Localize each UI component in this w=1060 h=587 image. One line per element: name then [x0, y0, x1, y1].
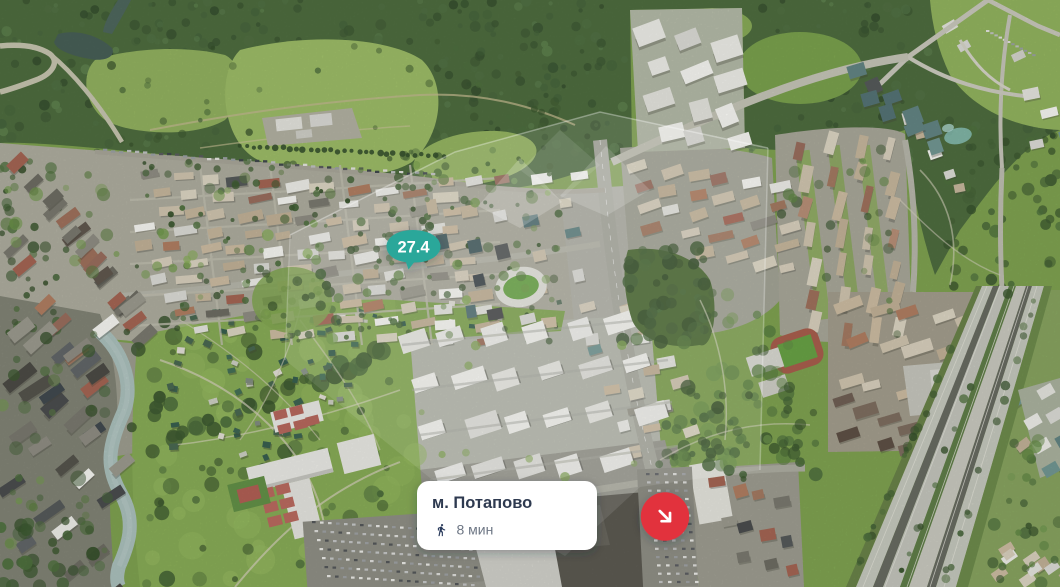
svg-text:м. Потапово: м. Потапово — [432, 494, 532, 512]
svg-text:27.4: 27.4 — [397, 239, 430, 257]
svg-text:8 мин: 8 мин — [457, 522, 494, 538]
